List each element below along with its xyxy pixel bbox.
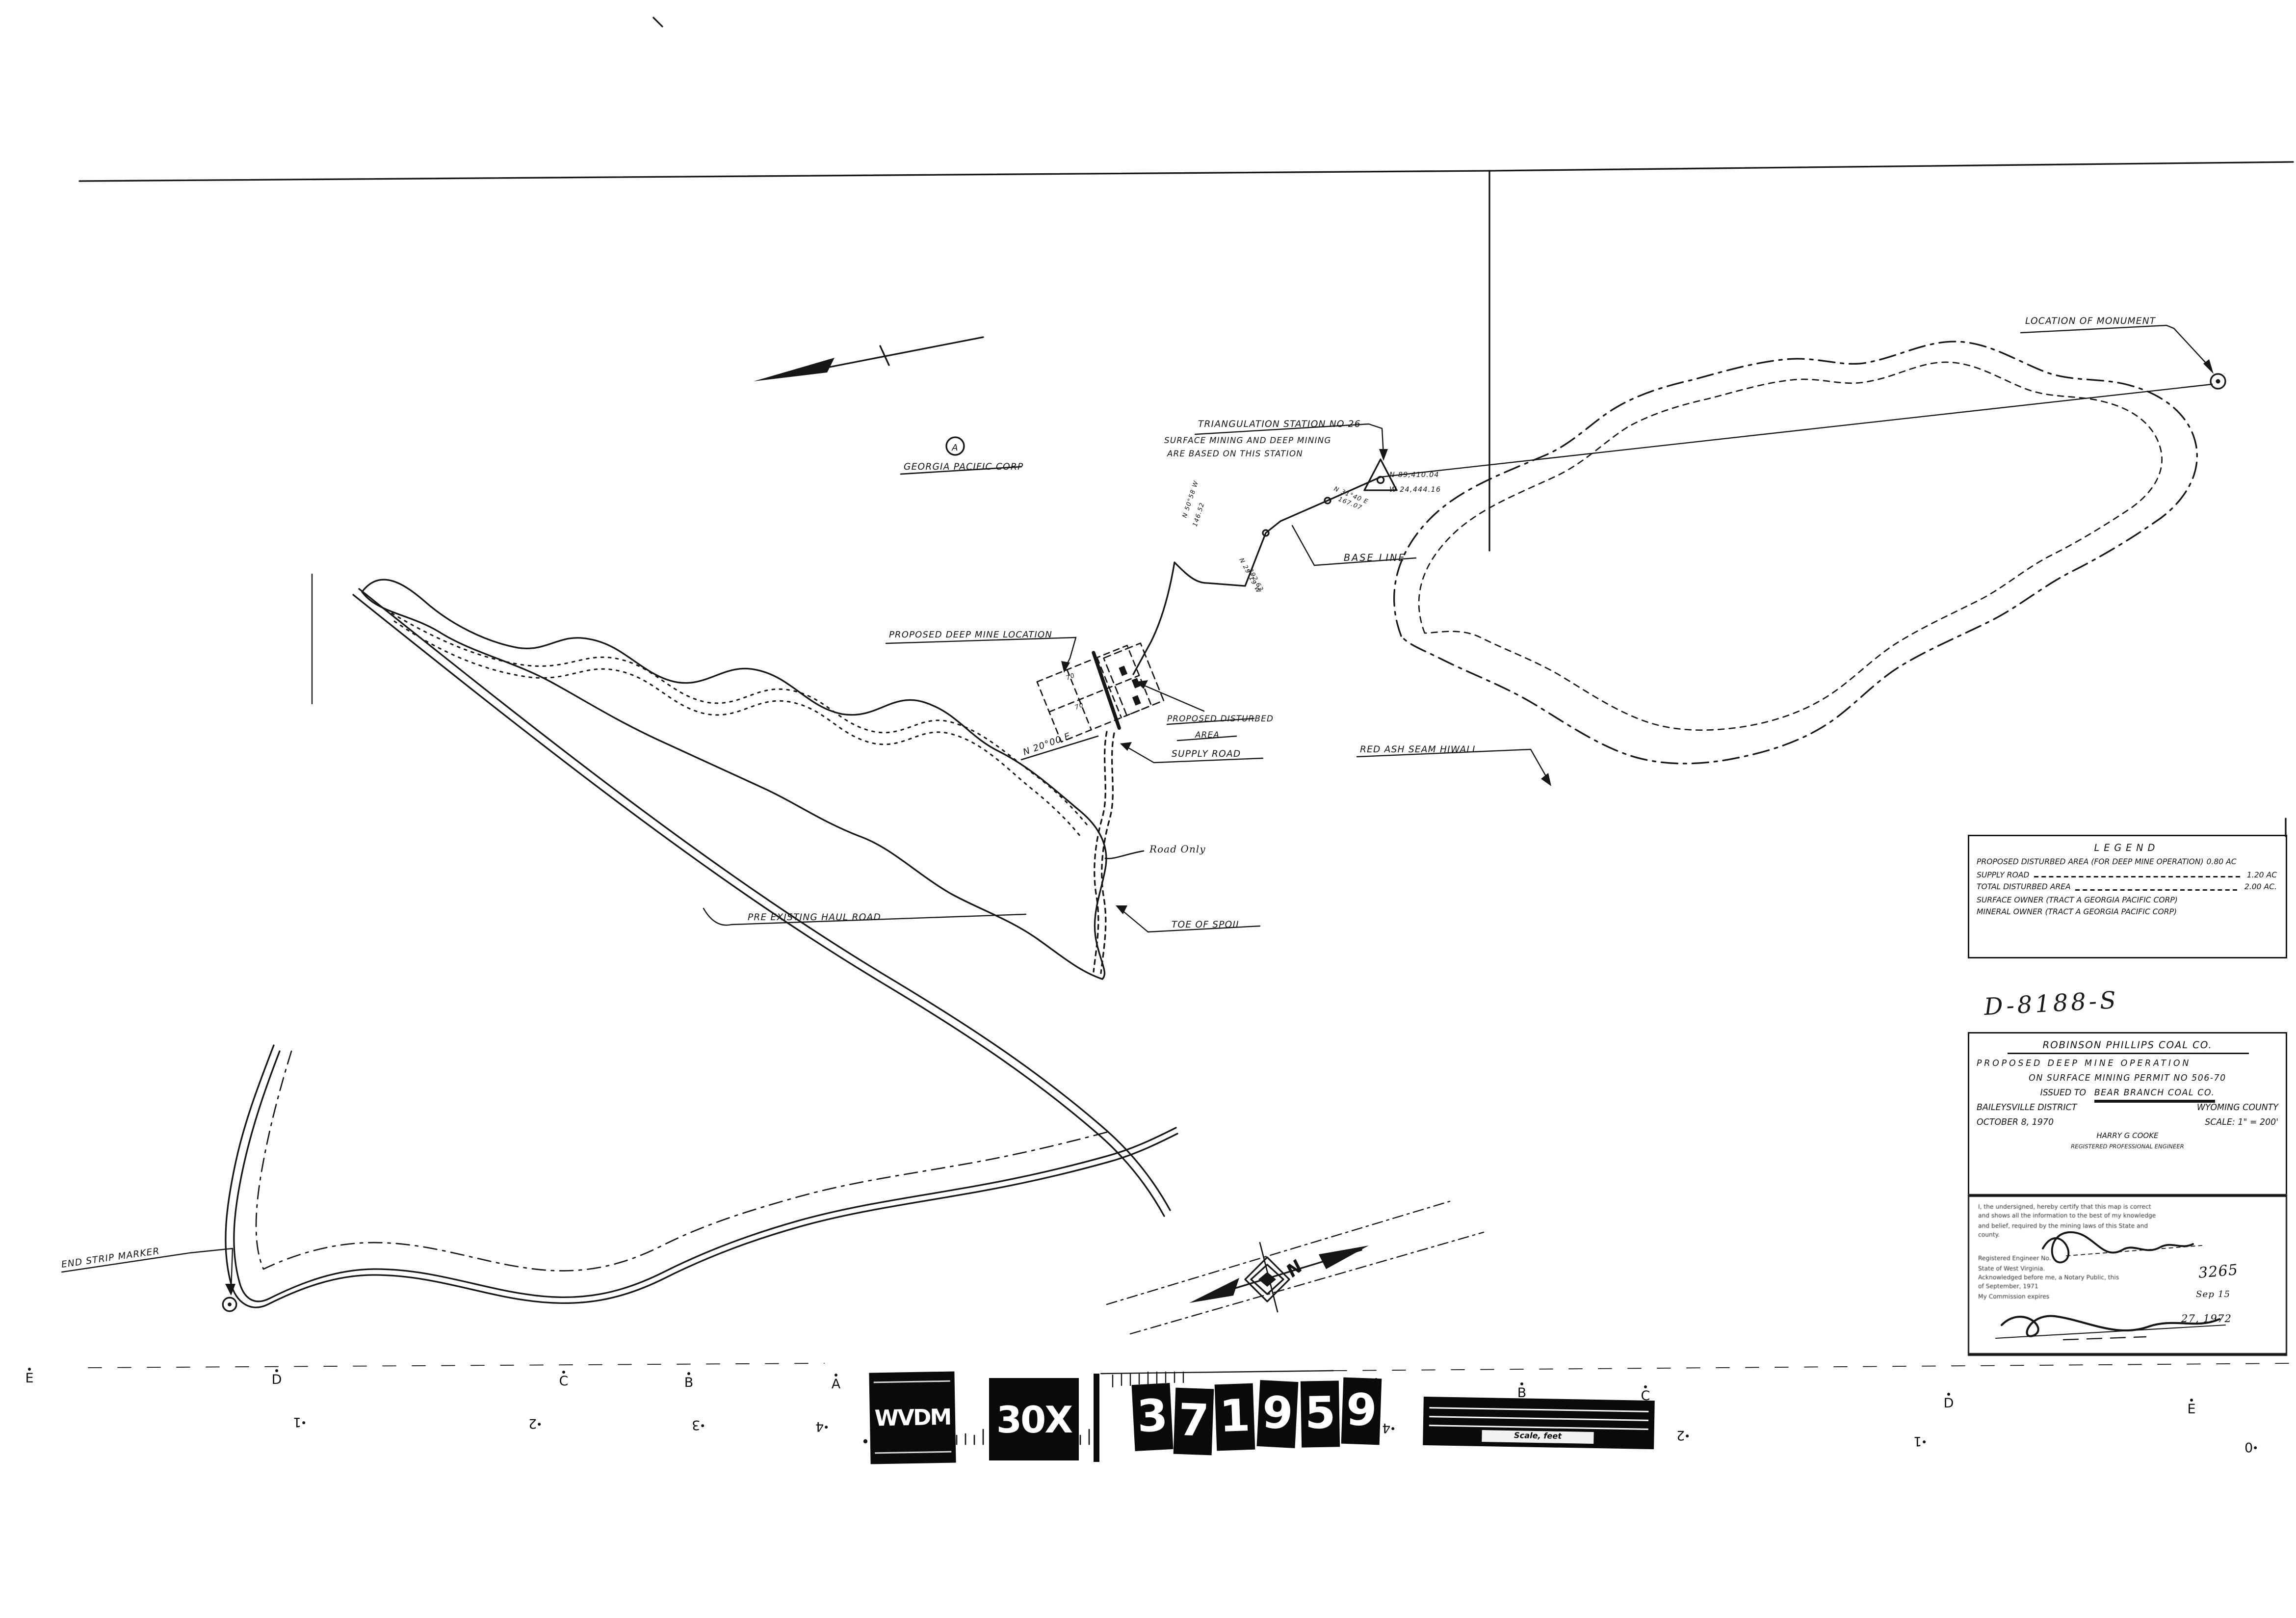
index-letter: B <box>680 1372 698 1392</box>
arrow-redash <box>1541 773 1551 786</box>
reel-digit: 9 <box>1257 1380 1299 1448</box>
film-magnification-box: 30X <box>989 1378 1079 1460</box>
label-road-only: Road Only <box>1149 844 1206 855</box>
monument-dot <box>2216 379 2220 384</box>
index-number: 4 <box>1379 1419 1397 1434</box>
leader-roadonly <box>1105 851 1144 858</box>
label-grid-70a: 70 <box>1065 671 1076 682</box>
haul-road-line-2 <box>359 589 1170 1210</box>
index-letter: D <box>1940 1393 1957 1412</box>
bench-outline-lower <box>362 592 1102 979</box>
strip-loop-outer-2 <box>234 1051 1176 1301</box>
map-drawing: LOCATION OF MONUMENT TRIANGULATION STATI… <box>0 0 2296 1618</box>
title-line2: ON SURFACE MINING PERMIT NO 506-70 <box>1977 1075 2278 1084</box>
label-station-coord-w: W 24,444.16 <box>1389 486 1441 494</box>
county-name: WYOMING COUNTY <box>2197 1104 2278 1113</box>
legend-row: PROPOSED DISTURBED AREA (FOR DEEP MINE O… <box>1977 858 2277 867</box>
label-station-coord-n: N 89,410.04 <box>1389 471 1439 479</box>
label-distance-3: 146.52 <box>1191 502 1206 528</box>
index-letter: D <box>268 1369 286 1389</box>
legend-row-label: SURFACE OWNER (TRACT A GEORGIA PACIFIC C… <box>1977 896 2178 905</box>
traverse-to-mine <box>1133 562 1174 674</box>
strip-loop-inner-dashdot <box>256 1051 1107 1271</box>
cert-line: and belief, required by the mining laws … <box>1978 1221 2277 1231</box>
legend-row-label: MINERAL OWNER (TRACT A GEORGIA PACIFIC C… <box>1977 909 2177 918</box>
title-block: ROBINSON PHILLIPS COAL CO. PROPOSED DEEP… <box>1968 1032 2287 1194</box>
legend-dash-leader <box>2075 889 2237 890</box>
legend-row: MINERAL OWNER (TRACT A GEORGIA PACIFIC C… <box>1977 909 2277 918</box>
index-letter: C <box>555 1371 573 1390</box>
film-agency-label: WVDM <box>874 1404 951 1432</box>
label-triangulation-note1: SURFACE MINING AND DEEP MINING <box>1164 435 1331 445</box>
reel-digit: 1 <box>1215 1383 1255 1451</box>
north-sight-arrowhead <box>754 358 835 381</box>
label-red-ash: RED ASH SEAM HIWALL <box>1360 744 1478 755</box>
label-end-strip-marker: END STRIP MARKER <box>61 1246 160 1270</box>
cert-notary-line2: of September, 1971 <box>1978 1283 2277 1292</box>
top-border-line <box>79 162 2293 181</box>
company-name: ROBINSON PHILLIPS COAL CO. <box>2007 1039 2248 1054</box>
engineer-title: REGISTERED PROFESSIONAL ENGINEER <box>1977 1142 2278 1150</box>
label-tract-letter: A <box>951 443 959 453</box>
label-toe-of-spoil: TOE OF SPOIL <box>1172 920 1242 930</box>
district-name: BAILEYSVILLE DISTRICT <box>1977 1104 2077 1113</box>
title-line1: PROPOSED DEEP MINE OPERATION <box>1977 1060 2278 1069</box>
index-number: 0 <box>2242 1438 2259 1453</box>
legend: LEGEND PROPOSED DISTURBED AREA (FOR DEEP… <box>1968 835 2287 958</box>
cert-engineer-no-label: Registered Engineer No. <box>1978 1255 2277 1264</box>
legend-row-label: TOTAL DISTURBED AREA <box>1977 884 2071 893</box>
arrow-supply <box>1120 742 1132 751</box>
index-number: 2 <box>525 1415 543 1430</box>
map-date: OCTOBER 8, 1970 <box>1977 1118 2054 1127</box>
permit-boundary-dashdot <box>1394 342 2197 764</box>
reel-digit: 5 <box>1301 1380 1340 1447</box>
index-letter: E <box>2183 1399 2200 1418</box>
index-number: 1 <box>290 1413 308 1428</box>
cert-line: and shows all the information to the bes… <box>1978 1212 2277 1221</box>
supply-road-dotted-2 <box>1101 733 1114 973</box>
cert-line: I, the undersigned, hereby certify that … <box>1978 1203 2277 1212</box>
label-disturbed-area-1: PROPOSED DISTURBED <box>1167 714 1274 723</box>
label-disturbed-area-2: AREA <box>1195 730 1220 740</box>
legend-row-value: 0.80 AC <box>2207 858 2237 867</box>
sight-line <box>1381 384 2212 477</box>
arrow-endstrip <box>225 1284 235 1296</box>
reel-digit: 3 <box>1132 1383 1174 1451</box>
label-deep-mine-location: PROPOSED DEEP MINE LOCATION <box>889 630 1052 640</box>
index-number: 3 <box>689 1416 706 1431</box>
strip-loop-outer <box>226 1045 1177 1307</box>
map-sheet: LOCATION OF MONUMENT TRIANGULATION STATI… <box>0 0 2296 1618</box>
cert-state-line: State of West Virginia. <box>1978 1264 2277 1273</box>
arrow-deep-mine <box>1061 661 1070 673</box>
bench-dotted-contour-2 <box>394 621 1080 836</box>
label-base-line: BASE LINE <box>1344 552 1406 563</box>
label-location-of-monument: LOCATION OF MONUMENT <box>2025 316 2156 326</box>
issued-to-name: BEAR BRANCH COAL CO. <box>2094 1089 2215 1103</box>
legend-row-value: 2.00 AC. <box>2244 884 2277 893</box>
legend-row-label: PROPOSED DISTURBED AREA (FOR DEEP MINE O… <box>1977 858 2204 867</box>
label-triangulation-note2: ARE BASED ON THIS STATION <box>1167 449 1303 458</box>
label-bearing-main: N 20°00 E <box>1022 731 1072 758</box>
deep-mine-grid <box>1035 635 1167 750</box>
index-letter: E <box>21 1368 38 1387</box>
scale-bar-label: Scale, feet <box>1482 1430 1593 1444</box>
leader-monument <box>2021 325 2211 368</box>
issued-prefix: ISSUED TO <box>2040 1089 2087 1098</box>
reel-digit: 9 <box>1341 1378 1382 1445</box>
haul-road-line-1 <box>353 595 1164 1216</box>
label-north-letter: N <box>1282 1256 1307 1281</box>
film-agency-box: WVDM <box>869 1371 956 1464</box>
legend-row: SURFACE OWNER (TRACT A GEORGIA PACIFIC C… <box>1977 896 2277 905</box>
index-number: 2 <box>1673 1427 1691 1441</box>
film-magnification-label: 30X <box>996 1398 1071 1441</box>
map-scale: SCALE: 1" = 200' <box>2205 1118 2278 1127</box>
graphic-scale-bar: Scale, feet <box>1423 1397 1655 1449</box>
legend-title: LEGEND <box>1977 842 2277 854</box>
end-strip-dot <box>228 1302 232 1306</box>
ruler-origin-dot <box>863 1439 867 1443</box>
index-letter: A <box>827 1374 845 1393</box>
label-supply-road: SUPPLY ROAD <box>1172 749 1241 759</box>
legend-row: TOTAL DISTURBED AREA 2.00 AC. <box>1977 884 2277 893</box>
cert-line: county. <box>1978 1231 2277 1240</box>
engineer-name: HARRY G COOKE <box>1977 1132 2278 1141</box>
top-tick <box>653 18 662 27</box>
film-divider-bar <box>1094 1374 1099 1462</box>
legend-dash-leader <box>2034 876 2239 877</box>
label-haul-road: PRE EXISTING HAUL ROAD <box>748 912 881 923</box>
bench-dotted-contour-1 <box>386 610 1089 827</box>
reel-digit: 7 <box>1174 1388 1214 1456</box>
cert-commission-line: My Commission expires <box>1978 1292 2277 1301</box>
index-number: 4 <box>812 1418 830 1432</box>
title-line3: ISSUED TO BEAR BRANCH COAL CO. <box>1977 1089 2278 1098</box>
index-number: 1 <box>1910 1432 1928 1447</box>
legend-row-value: 1.20 AC <box>2247 871 2277 880</box>
certification-block: I, the undersigned, hereby certify that … <box>1968 1194 2287 1356</box>
legend-row: SUPPLY ROAD 1.20 AC <box>1977 871 2277 880</box>
label-owner-name: GEORGIA PACIFIC CORP <box>904 462 1023 472</box>
cert-notary-line1: Acknowledged before me, a Notary Public,… <box>1978 1273 2277 1283</box>
strip-guide-dashes <box>88 1363 2290 1371</box>
label-triangulation-station: TRIANGULATION STATION NO 26 <box>1198 419 1361 429</box>
leader-deep-mine <box>886 637 1076 667</box>
legend-row-label: SUPPLY ROAD <box>1977 871 2029 880</box>
permit-boundary-inner-dashed <box>1419 362 2162 730</box>
